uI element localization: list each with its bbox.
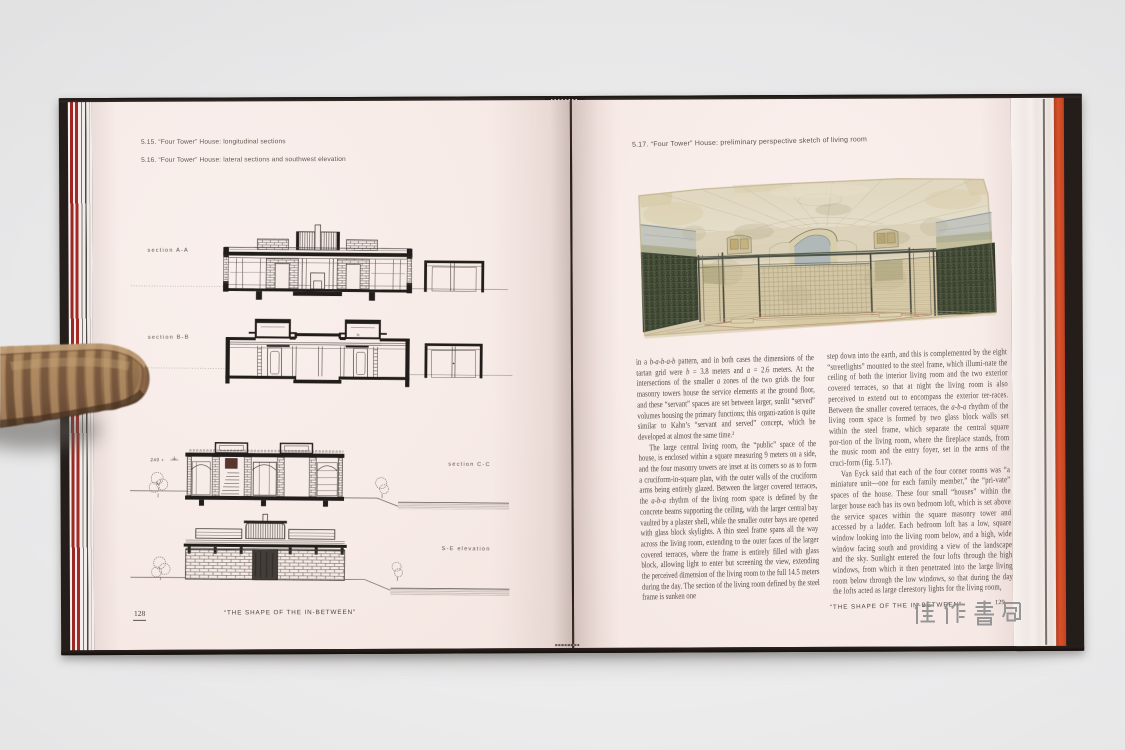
svg-text:N: N [357, 333, 360, 337]
svg-text:240 +: 240 + [150, 457, 164, 462]
svg-text:S-E elevation: S-E elevation [442, 546, 491, 552]
svg-text:section A-A: section A-A [147, 248, 189, 254]
svg-text:section C-C: section C-C [448, 462, 490, 468]
